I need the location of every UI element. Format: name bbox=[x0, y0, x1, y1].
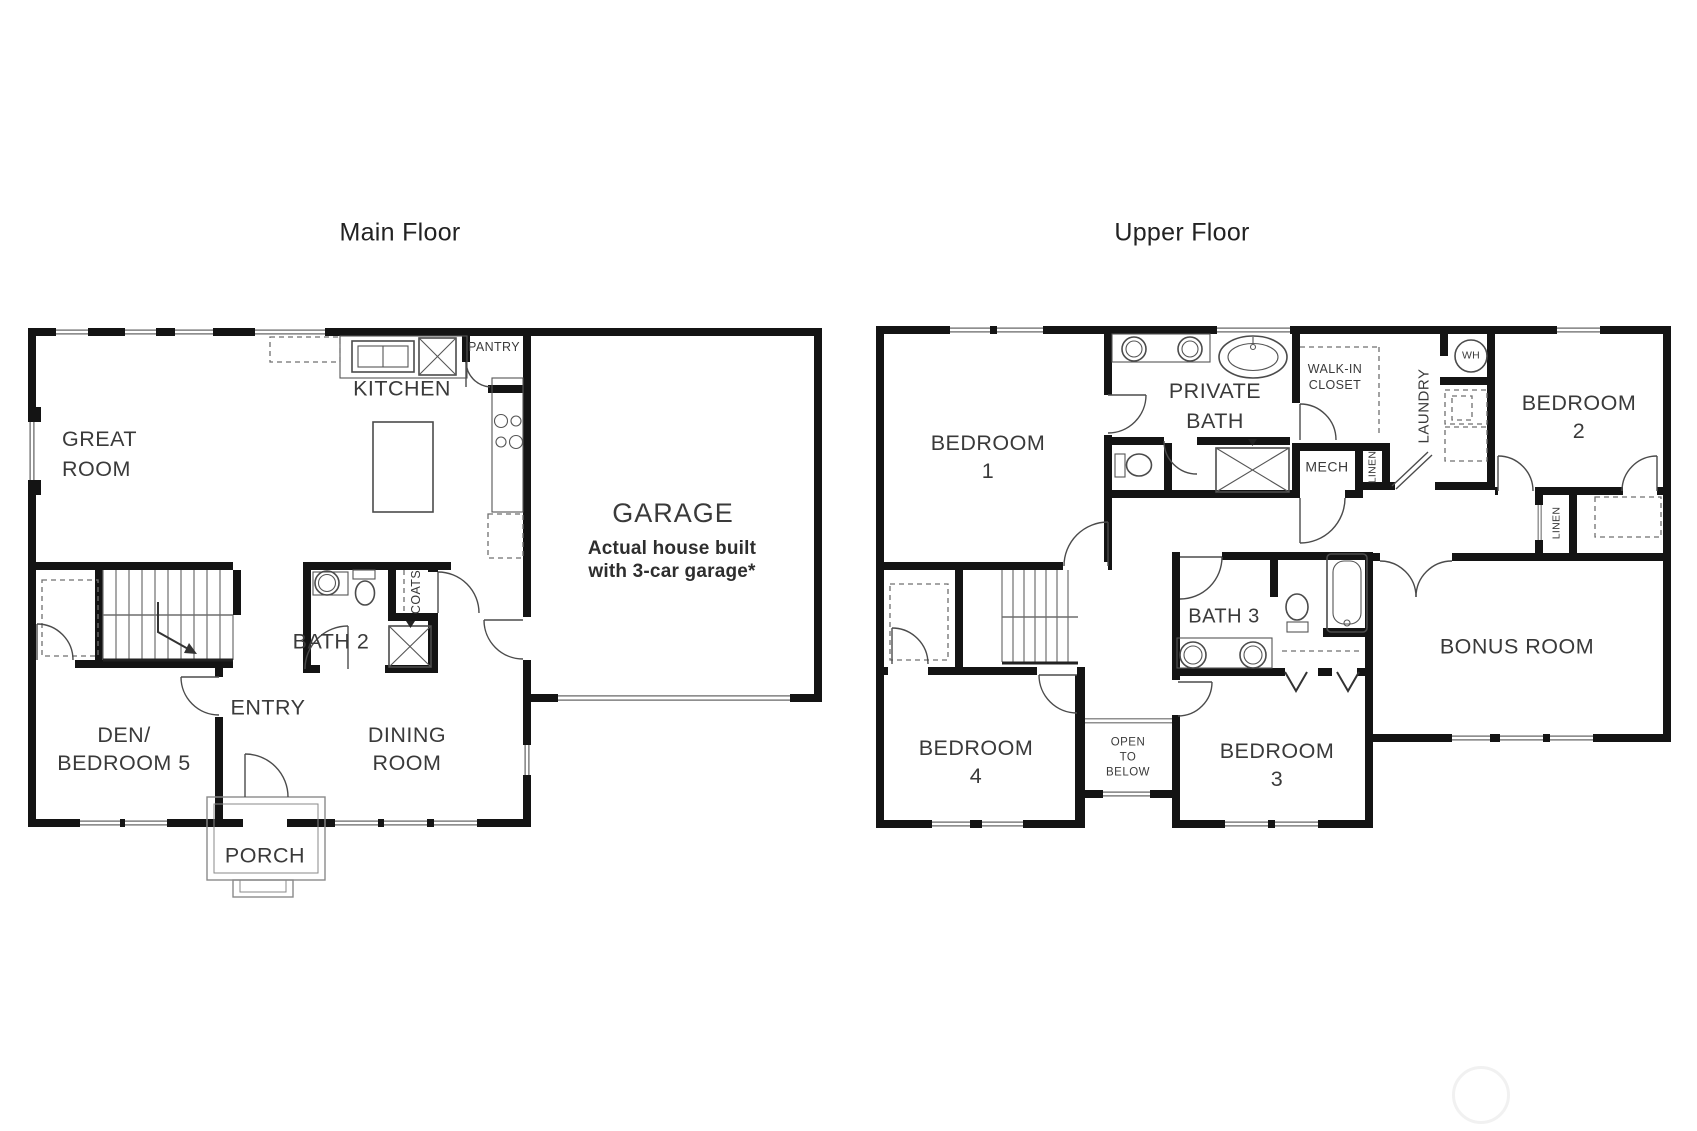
main-floor-title: Main Floor bbox=[339, 217, 460, 248]
room-label-bedroom4: BEDROOM 4 bbox=[919, 734, 1034, 790]
garage-note: Actual house built with 3-car garage* bbox=[588, 538, 756, 584]
floorplan-drawing: .w{fill:#141414;} .thn{fill:none;stroke:… bbox=[0, 0, 1697, 1131]
room-label-bedroom3: BEDROOM 3 bbox=[1220, 737, 1335, 793]
watermark-logo bbox=[1452, 1066, 1510, 1124]
room-label-bedroom2: BEDROOM 2 bbox=[1522, 389, 1637, 445]
upper-floor-title: Upper Floor bbox=[1114, 217, 1249, 248]
room-label-bath3: BATH 3 bbox=[1188, 605, 1260, 630]
main-floor-fixtures bbox=[207, 336, 523, 897]
room-label-private-bath: PRIVATE BATH bbox=[1169, 376, 1261, 436]
room-label-porch: PORCH bbox=[225, 843, 305, 870]
room-label-bedroom1: BEDROOM 1 bbox=[931, 429, 1046, 485]
room-label-kitchen: KITCHEN bbox=[353, 376, 451, 403]
room-label-coats: COATS bbox=[409, 570, 425, 614]
upper-floor-stairs bbox=[890, 570, 1078, 663]
room-label-mech: MECH bbox=[1305, 458, 1348, 476]
room-label-linen-a: LINEN bbox=[1366, 451, 1379, 483]
room-label-den-bedroom5: DEN/ BEDROOM 5 bbox=[57, 721, 191, 777]
room-label-laundry: LAUNDRY bbox=[1416, 369, 1435, 444]
room-label-pantry: PANTRY bbox=[468, 340, 520, 356]
room-label-dining-room: DINING ROOM bbox=[368, 721, 446, 777]
room-label-linen-b: LINEN bbox=[1550, 507, 1563, 539]
room-label-bonus-room: BONUS ROOM bbox=[1440, 634, 1594, 661]
room-label-entry: ENTRY bbox=[231, 695, 306, 722]
room-label-walk-in-closet: WALK-IN CLOSET bbox=[1308, 361, 1362, 393]
floorplan-canvas: .w{fill:#141414;} .thn{fill:none;stroke:… bbox=[0, 0, 1697, 1131]
room-label-great-room: GREAT ROOM bbox=[62, 424, 137, 484]
room-label-bath2: BATH 2 bbox=[293, 629, 370, 656]
room-label-garage: GARAGE bbox=[612, 497, 734, 531]
open-to-below-label: OPEN TO BELOW bbox=[1106, 736, 1150, 781]
water-heater-label: WH bbox=[1462, 349, 1480, 362]
